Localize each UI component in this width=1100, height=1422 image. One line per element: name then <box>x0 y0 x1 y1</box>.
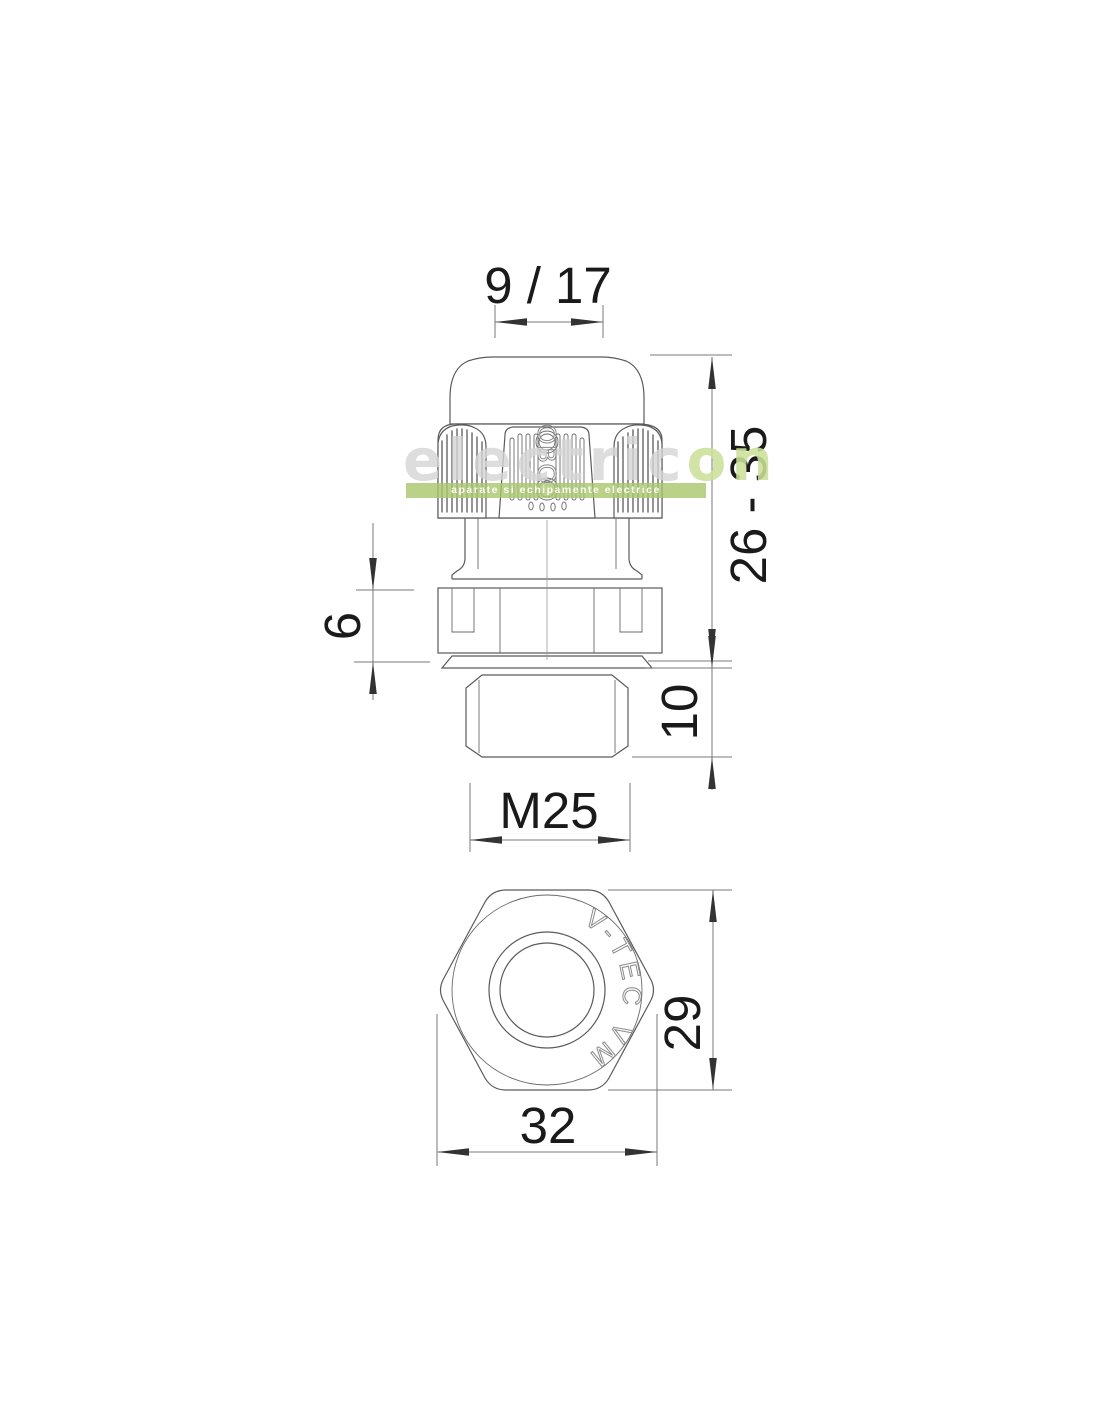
dimension-thread-size: M25 <box>470 782 630 852</box>
technical-drawing-page: OBO <box>0 0 1100 1422</box>
dome-cap-outline <box>450 357 644 424</box>
thread-size-label: M25 <box>499 782 598 839</box>
hex-nut-side <box>438 588 662 653</box>
thread-length-label: 10 <box>651 684 708 741</box>
collar-height-label: 6 <box>314 612 371 640</box>
cable-gland-drawing: OBO <box>0 0 1100 1422</box>
cable-range-label: 9 / 17 <box>484 257 612 314</box>
across-flats-label: 29 <box>654 995 711 1052</box>
dimension-thread-length: 10 <box>632 636 732 789</box>
dimension-cable-range: 9 / 17 <box>484 257 612 338</box>
dimension-collar-height: 6 <box>314 523 430 700</box>
threaded-stem <box>466 675 628 757</box>
side-view: OBO <box>438 357 662 757</box>
brand-marking: OBO <box>532 424 562 485</box>
top-view: V-TEC VM <box>441 890 654 1090</box>
overall-height-label: 26 - 35 <box>720 426 777 585</box>
across-corners-label: 32 <box>520 1097 577 1154</box>
